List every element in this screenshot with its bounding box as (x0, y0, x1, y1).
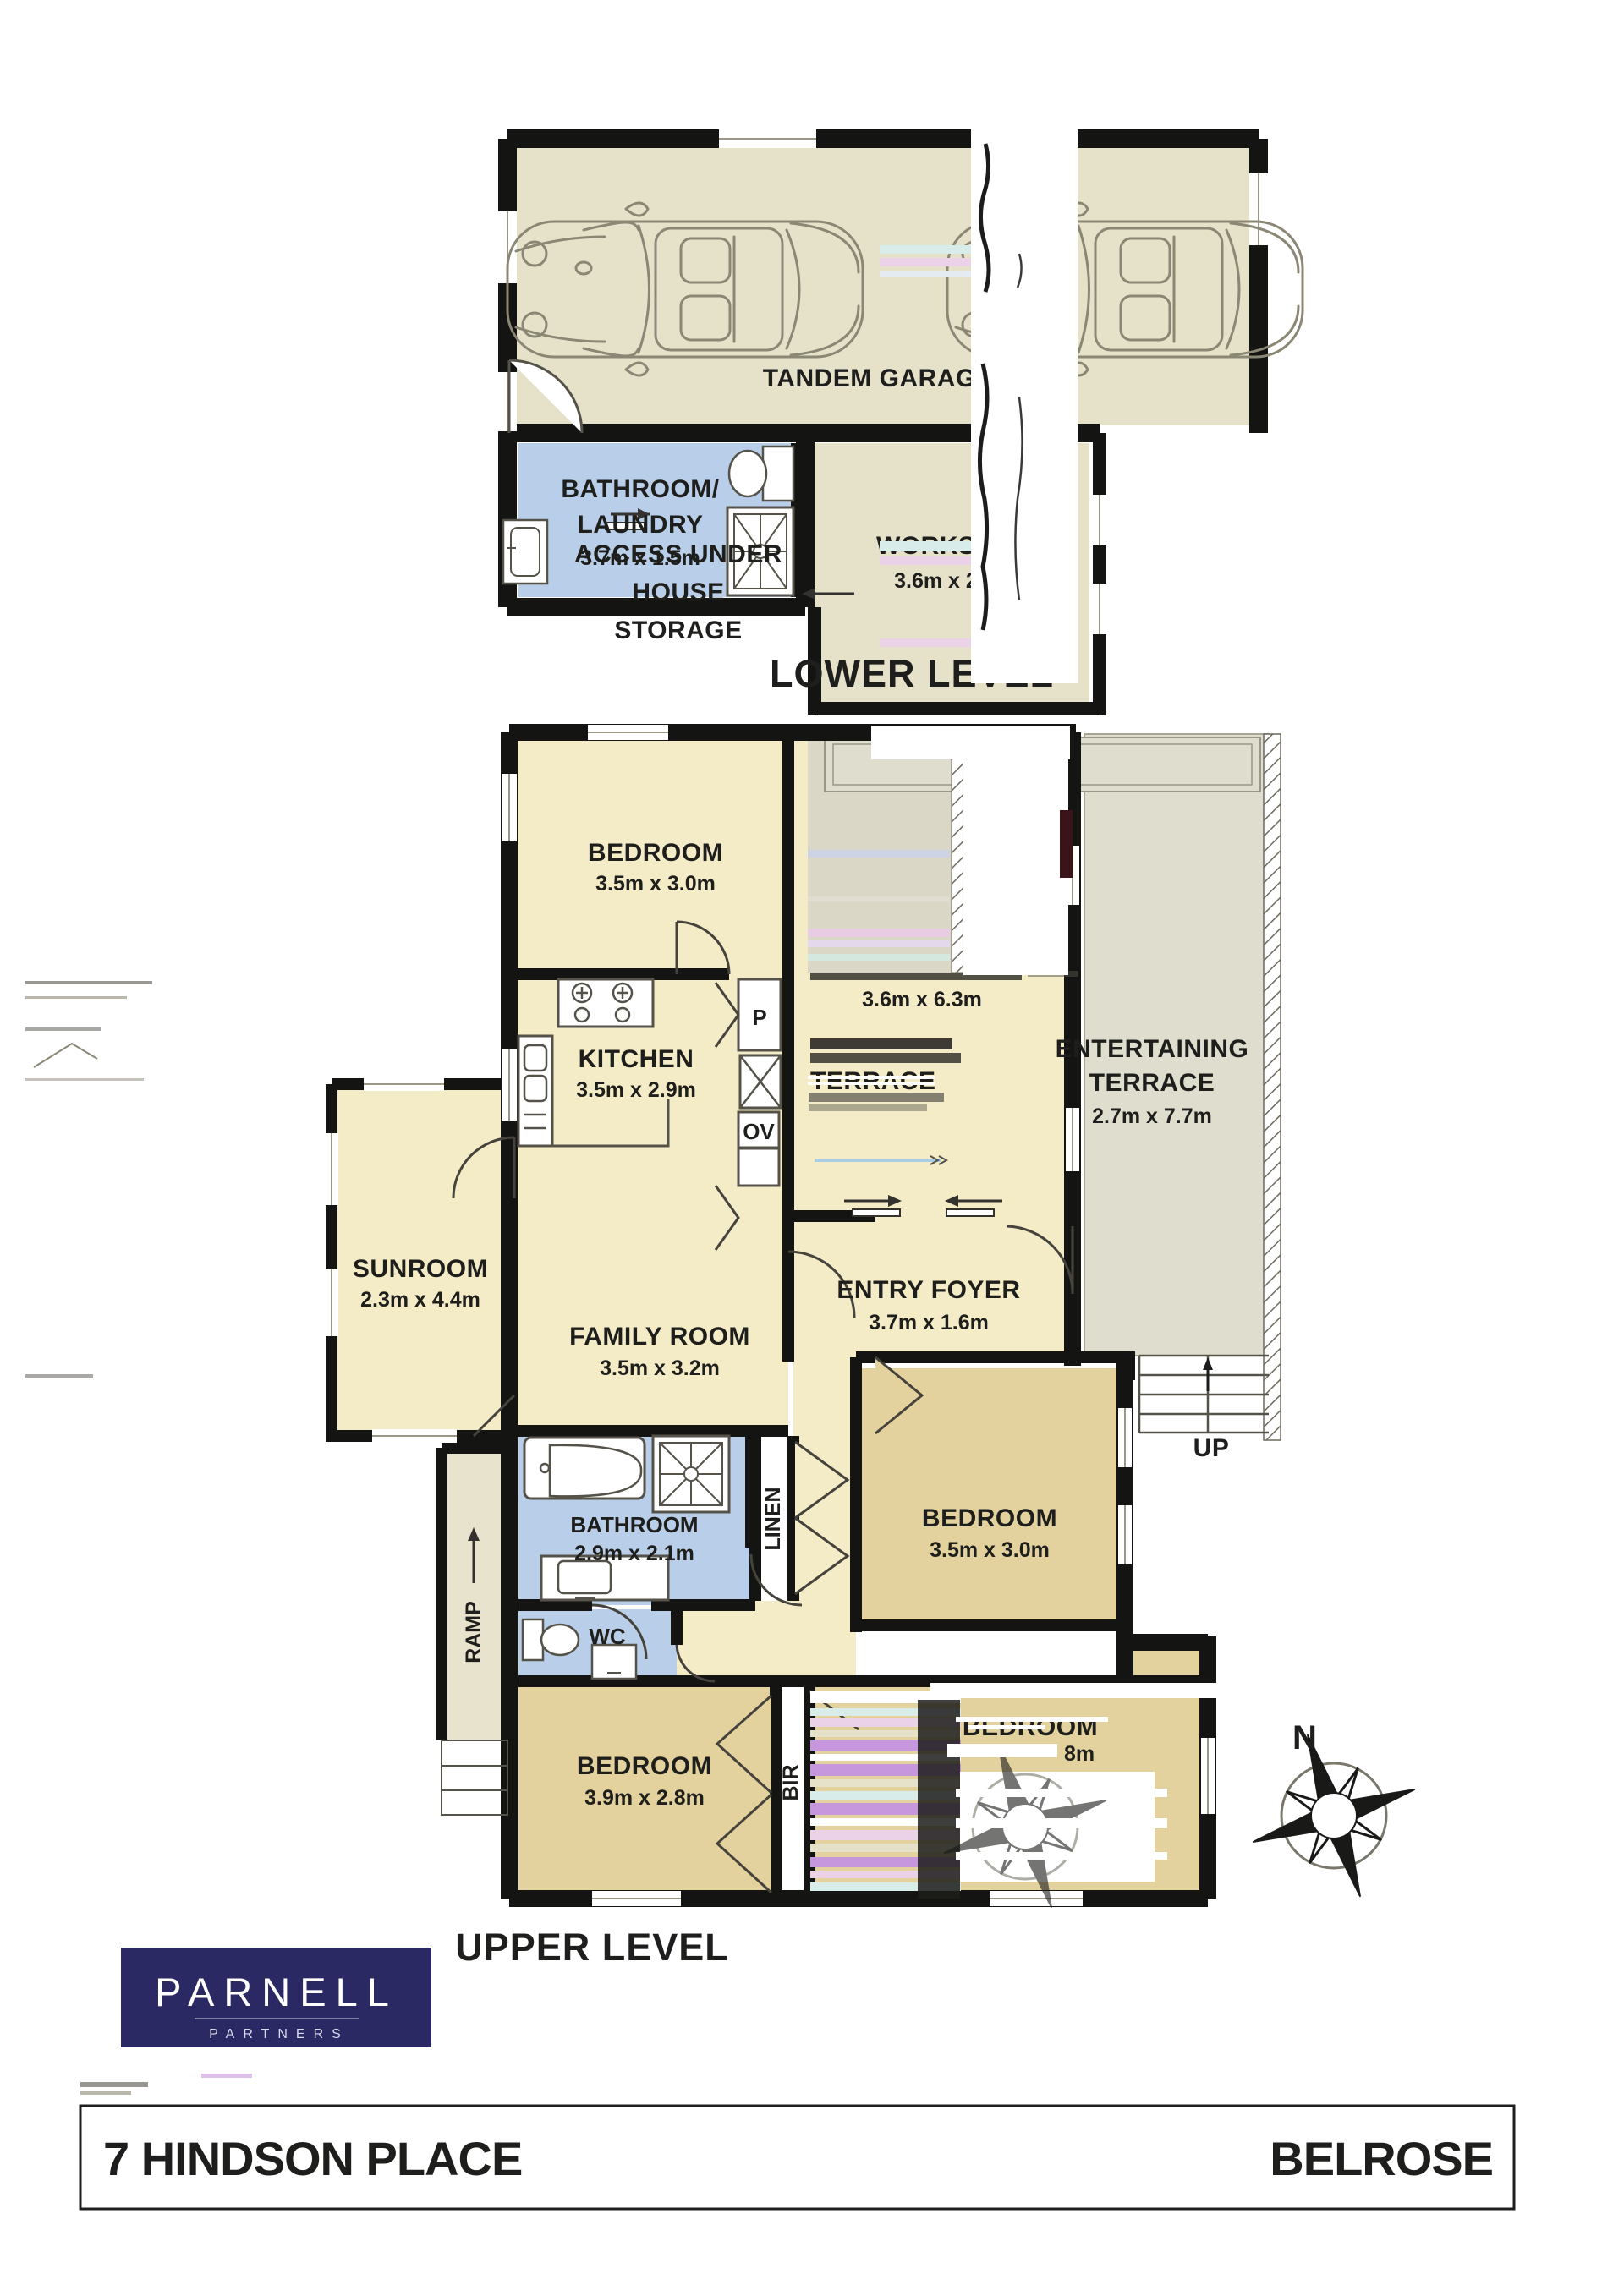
terrace-label1: ENTERTAINING (1056, 1035, 1249, 1063)
wc-basin-icon (592, 1645, 636, 1679)
compass-north-label: N (1292, 1719, 1317, 1756)
bedroom-mid-dims: 3.5m x 3.0m (930, 1538, 1050, 1562)
entry-foyer-dims: 3.7m x 1.6m (869, 1311, 989, 1334)
bedroom-top-dims: 3.5m x 3.0m (595, 872, 716, 896)
upper-level-title: UPPER LEVEL (455, 1926, 729, 1969)
storage-note-3: STORAGE (614, 616, 742, 644)
floorplan-page: TANDEM GARAGE BATHROOM/ LAUNDRY 3.7m x 1… (0, 0, 1624, 2296)
bedroom-mid-label: BEDROOM (922, 1504, 1057, 1532)
parnell-logo: PARNELL PARTNERS (121, 1948, 431, 2047)
bedroom-top-label: BEDROOM (588, 839, 723, 867)
stairs-up (1118, 1351, 1269, 1433)
pantry-label: P (752, 1005, 766, 1030)
bedroom-left-dims: 3.9m x 2.8m (584, 1786, 705, 1810)
footer-bar: 7 HINDSON PLACE BELROSE (80, 2106, 1514, 2209)
garage-label: TANDEM GARAGE (763, 364, 994, 392)
floorplan-svg: TANDEM GARAGE BATHROOM/ LAUNDRY 3.7m x 1… (0, 0, 1624, 2296)
ramp-label: RAMP (462, 1601, 486, 1663)
bir-label: BIR (779, 1764, 803, 1800)
footer-suburb: BELROSE (1270, 2132, 1493, 2185)
entry-foyer-label: ENTRY FOYER (837, 1276, 1020, 1304)
lounge-dims: 3.6m x 6.3m (862, 988, 982, 1011)
family-room-dims: 3.5m x 3.2m (600, 1356, 720, 1380)
storage-note-2: HOUSE (632, 578, 724, 606)
bedroom-left-label: BEDROOM (577, 1752, 712, 1780)
glitch-artifact (25, 981, 252, 2095)
compass: N (1250, 1719, 1418, 1899)
bathroom-label: BATHROOM (570, 1512, 698, 1537)
wc-label: WC (589, 1624, 626, 1649)
family-room-label: FAMILY ROOM (569, 1323, 750, 1351)
lower-level-plan: TANDEM GARAGE BATHROOM/ LAUNDRY 3.7m x 1… (498, 125, 1303, 715)
sunroom-dims: 2.3m x 4.4m (360, 1288, 480, 1312)
bathroom-dims: 2.9m x 2.1m (574, 1542, 694, 1565)
kitchen-dims: 3.5m x 2.9m (576, 1078, 696, 1102)
sunroom-label: SUNROOM (353, 1255, 488, 1283)
laundry-tub-icon (503, 520, 547, 584)
kitchen-label: KITCHEN (579, 1045, 694, 1073)
terrace-hatch-band (1264, 734, 1281, 1440)
linen-label: LINEN (761, 1488, 785, 1551)
footer-address: 7 HINDSON PLACE (103, 2132, 522, 2185)
storage-note-1: ACCESS UNDER (574, 540, 782, 568)
upper-level-plan: BEDROOM 3.5m x 3.0m KITCHEN 3.5m x 2.9m … (326, 725, 1418, 1969)
bathroom-laundry-label2: LAUNDRY (577, 511, 703, 539)
ramp-strip (442, 1448, 507, 1740)
compass-icon (1250, 1732, 1418, 1899)
up-label: UP (1193, 1434, 1230, 1462)
logo-sub: PARTNERS (209, 2027, 349, 2041)
bathroom-laundry-label1: BATHROOM/ (561, 475, 719, 503)
terrace-dims: 2.7m x 7.7m (1092, 1104, 1212, 1128)
logo-brand: PARNELL (155, 1970, 398, 2014)
stove-icon (558, 979, 653, 1027)
oven-label: OV (743, 1119, 775, 1144)
lounge-glitch-terrace: TERRACE (810, 1067, 936, 1095)
bedroom-right-dims-fragment: 8m (1064, 1742, 1095, 1766)
shower-icon (653, 1436, 729, 1512)
terrace-label2: TERRACE (1089, 1069, 1215, 1097)
